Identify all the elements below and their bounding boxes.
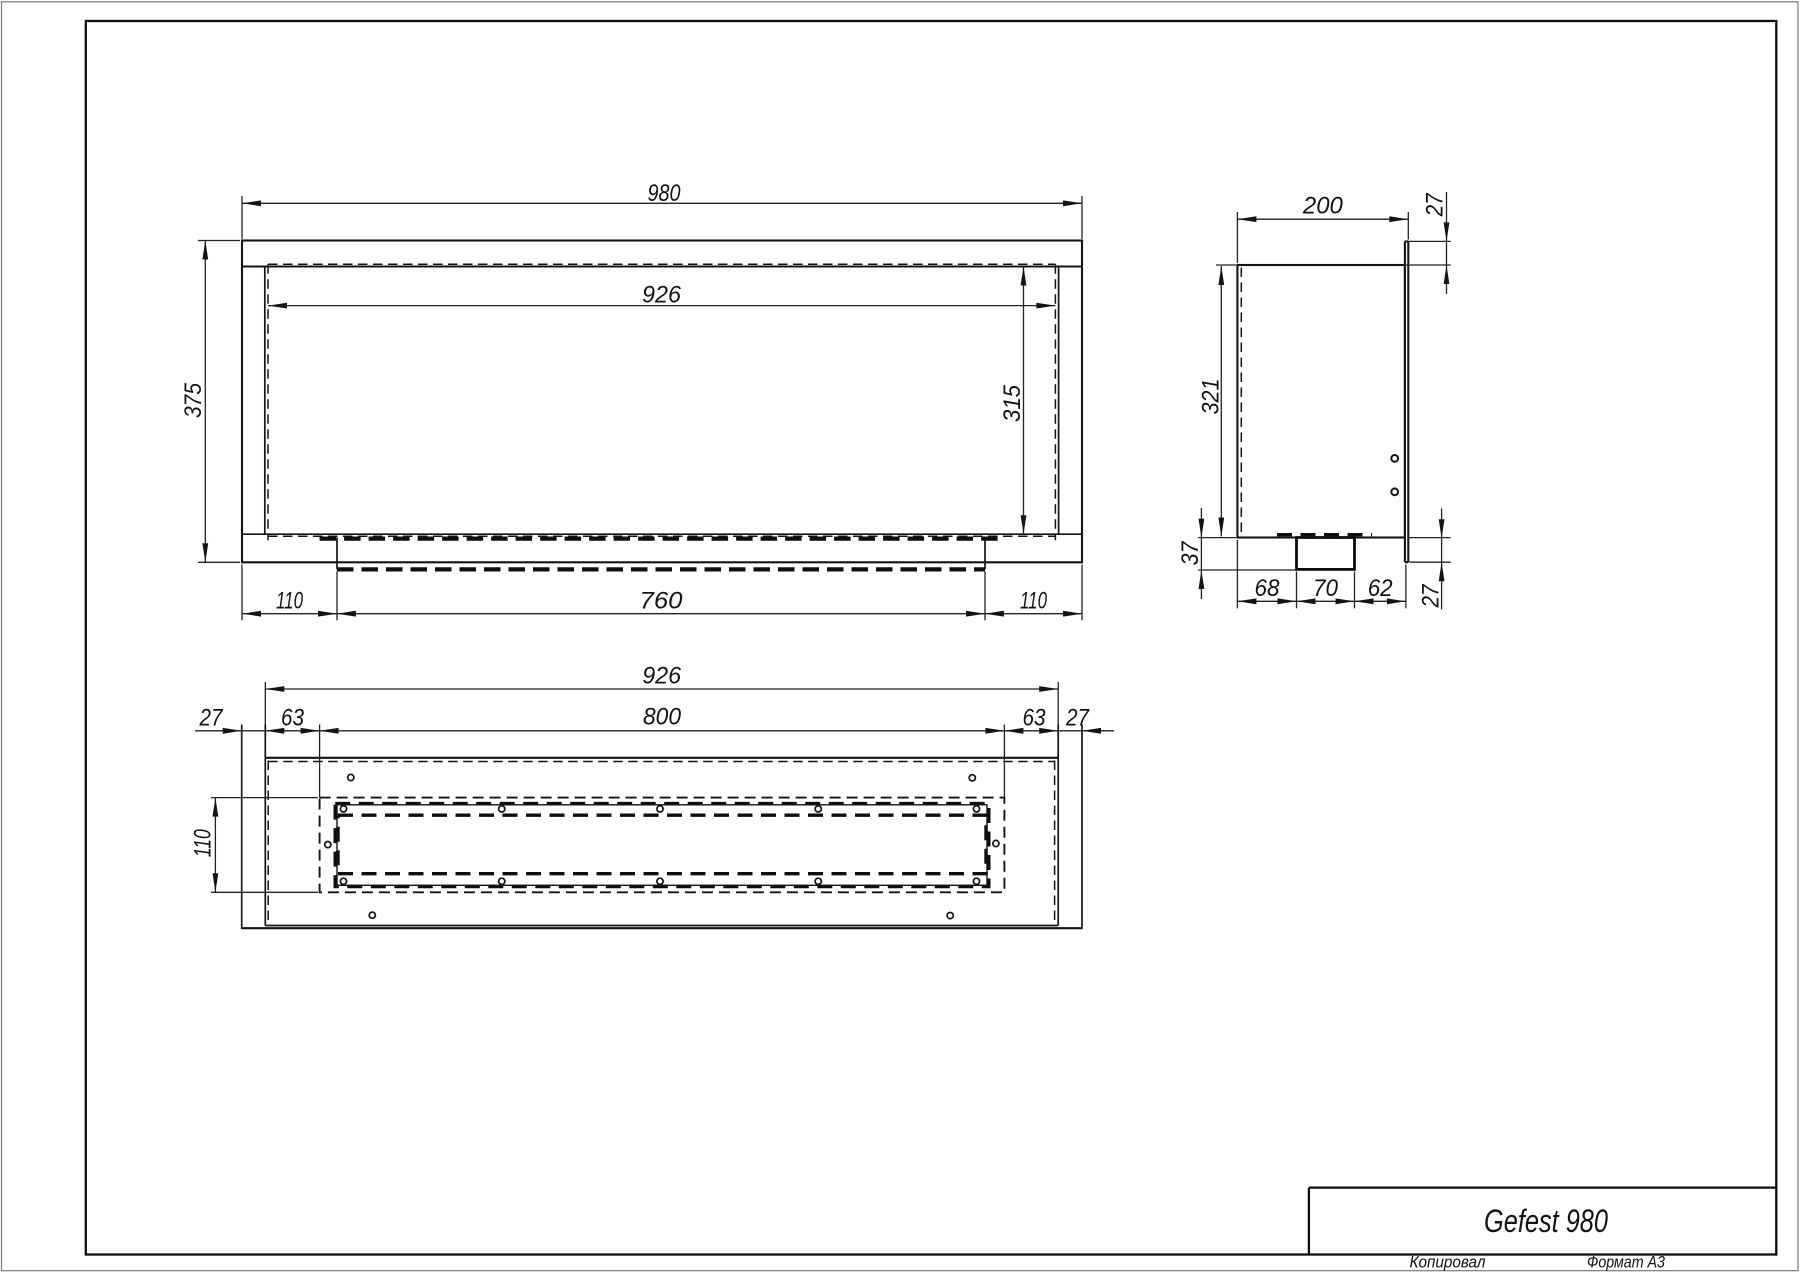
svg-text:375: 375 — [180, 383, 207, 418]
svg-text:926: 926 — [642, 281, 681, 308]
svg-text:27: 27 — [199, 705, 224, 732]
svg-text:Gefest 980: Gefest 980 — [1484, 1203, 1608, 1239]
svg-text:70: 70 — [1313, 575, 1338, 602]
svg-text:110: 110 — [189, 829, 216, 857]
svg-text:62: 62 — [1368, 575, 1393, 602]
svg-text:Формат А3: Формат А3 — [1587, 1252, 1665, 1271]
svg-text:800: 800 — [643, 704, 681, 731]
svg-text:63: 63 — [281, 705, 304, 732]
svg-text:27: 27 — [1417, 583, 1444, 608]
svg-text:980: 980 — [648, 180, 681, 207]
svg-text:200: 200 — [1302, 193, 1343, 220]
svg-text:315: 315 — [999, 385, 1026, 422]
svg-text:110: 110 — [276, 588, 303, 615]
svg-text:37: 37 — [1177, 540, 1204, 565]
svg-text:Копировал: Копировал — [1410, 1252, 1486, 1271]
svg-text:760: 760 — [640, 588, 683, 615]
svg-text:68: 68 — [1255, 575, 1280, 602]
svg-text:27: 27 — [1065, 705, 1090, 732]
svg-text:63: 63 — [1023, 705, 1046, 732]
svg-text:27: 27 — [1422, 192, 1449, 217]
svg-text:321: 321 — [1197, 379, 1224, 415]
svg-text:926: 926 — [642, 663, 681, 690]
svg-text:110: 110 — [1020, 588, 1047, 615]
